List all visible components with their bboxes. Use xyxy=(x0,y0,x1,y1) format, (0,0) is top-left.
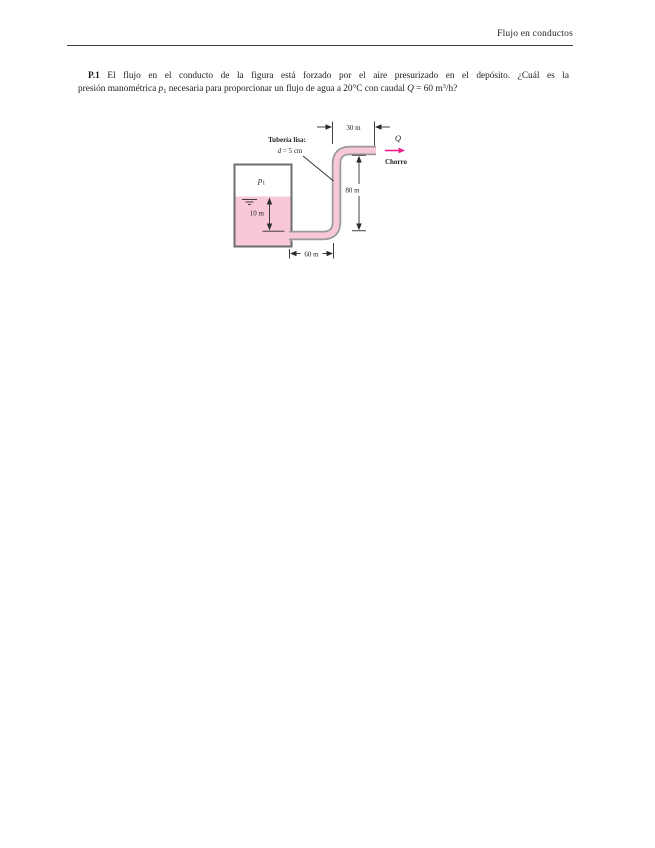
problem-text-5: /h? xyxy=(446,84,457,94)
flow-arrow-head xyxy=(399,148,406,154)
dimension-bottom: 60 m xyxy=(290,243,334,259)
problem-text-4: = 60 m xyxy=(414,84,443,94)
problem-line-2: presión manométrica p1 necesaria para pr… xyxy=(78,83,569,96)
dimension-vertical-label: 80 m xyxy=(345,187,360,195)
problem-line-1: P.1 El flujo en el conducto de la figura… xyxy=(78,70,569,83)
book-page: Flujo en conductos P.1 El flujo en el co… xyxy=(0,0,655,848)
jet-label: Chorro xyxy=(385,158,408,166)
callout-leader-line xyxy=(303,156,334,181)
dimension-top: 30 m xyxy=(317,122,390,146)
problem-statement: P.1 El flujo en el conducto de la figura… xyxy=(78,70,569,96)
flow-symbol: Q xyxy=(407,84,414,94)
problem-text-1: El flujo en el conducto de la figura est… xyxy=(100,71,569,81)
pipe-outer-wall xyxy=(289,151,376,236)
pipe-label: Tubería lisa: xyxy=(268,136,306,144)
pipe-diameter-label: d = 5 cm xyxy=(278,147,303,155)
problem-number: P.1 xyxy=(88,71,100,81)
problem-text-2: presión manométrica xyxy=(78,84,159,94)
flow-rate-label: Q xyxy=(395,133,401,143)
problem-text-3: necesaria para proporcionar un flujo de … xyxy=(166,84,407,94)
pipe-callout: Tubería lisa: d = 5 cm xyxy=(268,136,333,181)
dimension-top-label: 30 m xyxy=(346,124,361,132)
figure-tank-pipe-diagram: p1 10 m 80 m xyxy=(225,112,420,280)
dimension-bottom-label: 60 m xyxy=(304,250,319,258)
running-header-title: Flujo en conductos xyxy=(67,29,573,39)
tank-pressure-label: p1 xyxy=(257,175,265,187)
dimension-depth-label: 10 m xyxy=(250,210,265,218)
tank-water-fill xyxy=(235,197,292,248)
outlet-jet: Q Chorro xyxy=(385,133,408,166)
header-rule xyxy=(67,45,573,46)
dimension-vertical: 80 m xyxy=(345,155,366,231)
